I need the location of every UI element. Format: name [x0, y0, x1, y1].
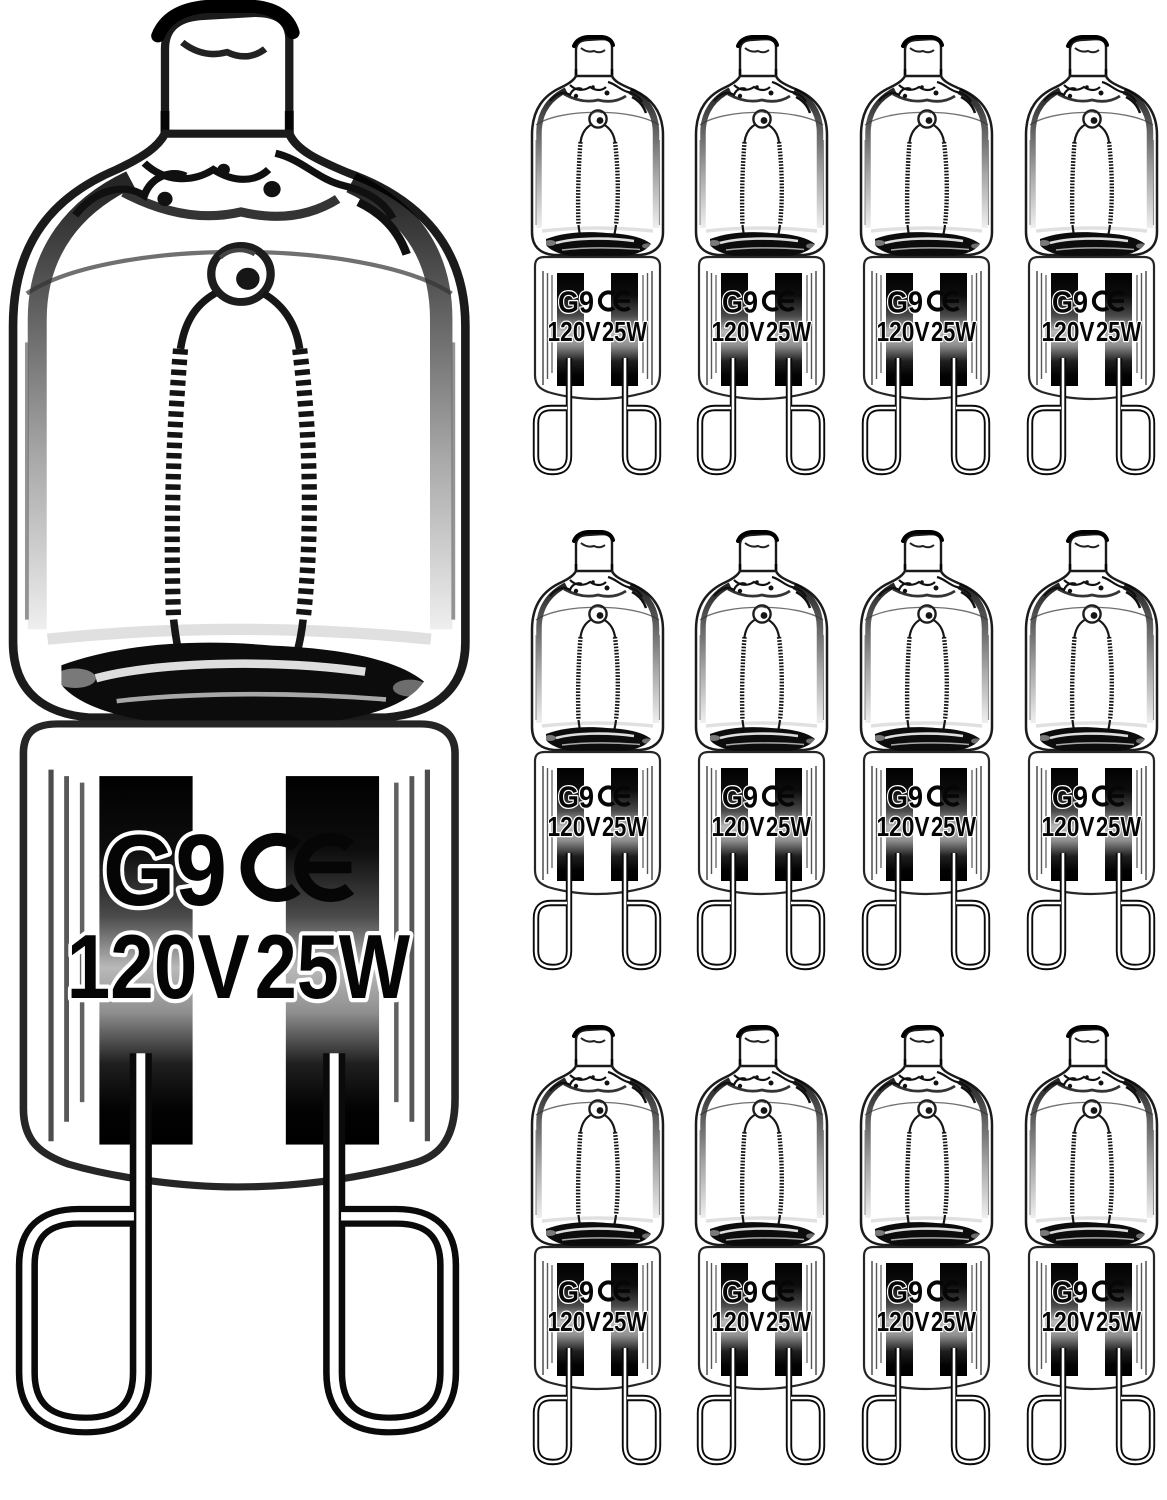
- halogen-bulb-thumbnail: [1006, 1025, 1167, 1485]
- halogen-bulb-thumbnail: [676, 530, 846, 990]
- halogen-bulb-thumbnail: [841, 530, 1011, 990]
- halogen-bulb-thumbnail: [841, 35, 1011, 495]
- halogen-bulb-thumbnail: [1006, 35, 1167, 495]
- halogen-bulb-thumbnail: [676, 1025, 846, 1485]
- halogen-bulb-thumbnail: [841, 1025, 1011, 1485]
- halogen-bulb-thumbnail: [512, 530, 682, 990]
- halogen-bulb-thumbnail: [676, 35, 846, 495]
- halogen-bulb-thumbnail: [1006, 530, 1167, 990]
- product-image: G9 CE 120V 25W: [0, 0, 1167, 1500]
- halogen-bulb-thumbnail: [512, 35, 682, 495]
- halogen-bulb-thumbnail: [512, 1025, 682, 1485]
- halogen-bulb-large: [0, 0, 531, 1500]
